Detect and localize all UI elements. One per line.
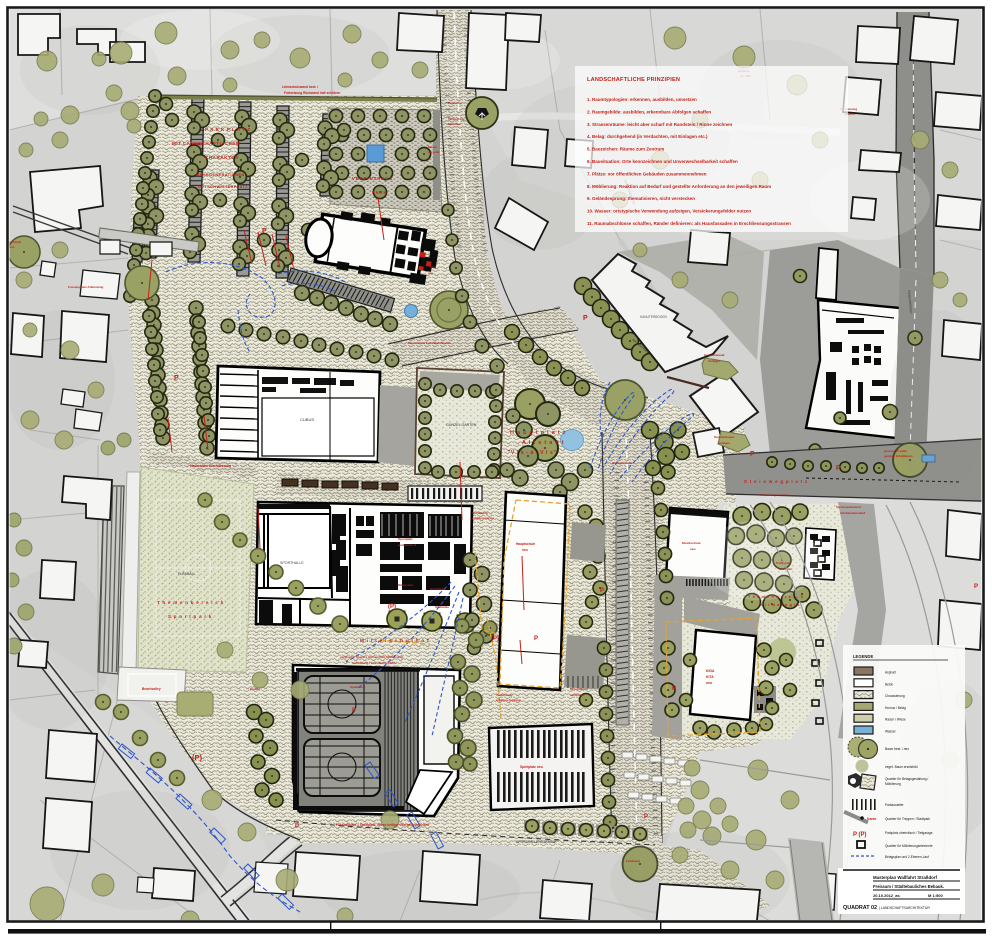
svg-text:neu: neu	[690, 547, 696, 551]
svg-text:Parkausteiler: Parkausteiler	[885, 803, 905, 807]
svg-text:Wiese neu: Wiese neu	[398, 583, 413, 587]
svg-text:P: P	[750, 451, 755, 458]
svg-text:Fortsetzung Rückwand halt schü: Fortsetzung Rückwand halt schützen	[284, 91, 340, 95]
svg-text:11. Raumabschlüsse schaffen, R: 11. Raumabschlüsse schaffen, Ränder defi…	[587, 221, 791, 226]
svg-text:10. Wasser: ortstypische Verwe: 10. Wasser: ortstypische Verwendung aufz…	[587, 209, 751, 214]
svg-text:Sitzbänke: Sitzbänke	[435, 605, 449, 609]
svg-text:mit Baumbestand: mit Baumbestand	[840, 511, 865, 515]
svg-text:Massnahme Erschliessung: Massnahme Erschliessung	[190, 464, 231, 468]
svg-text:Humus / Belag: Humus / Belag	[885, 706, 906, 710]
svg-text:P: P	[295, 824, 299, 830]
svg-text:Bushaltestelle: Bushaltestelle	[612, 461, 633, 465]
svg-text:SPORTHALLE: SPORTHALLE	[280, 561, 304, 565]
svg-text:neu: neu	[706, 681, 712, 685]
svg-text:8. Möblierung: Reaktion auf Be: 8. Möblierung: Reaktion auf Bedarf und g…	[587, 184, 771, 189]
svg-text:Rasen / Wiese: Rasen / Wiese	[885, 718, 906, 722]
svg-text:Spielwiese: Spielwiese	[350, 685, 366, 689]
svg-text:5. Bauzeichen: Räume zum Zentr: 5. Bauzeichen: Räume zum Zentrum	[587, 147, 664, 152]
svg-text:Spielplatz neu: Spielplatz neu	[520, 765, 543, 769]
svg-text:P: P	[174, 375, 179, 382]
svg-text:Möblierung: Möblierung	[885, 782, 901, 786]
svg-text:Kanuterbogen: Kanuterbogen	[714, 435, 735, 439]
svg-text:P: P	[600, 588, 604, 594]
svg-text:Lärmschutzwand best. /: Lärmschutzwand best. /	[282, 85, 318, 89]
svg-text:S p o r t p a r k: S p o r t p a r k	[168, 614, 212, 619]
svg-text:Masterplan Wallfahrt Straßdorf: Masterplan Wallfahrt Straßdorf	[873, 875, 938, 880]
svg-text:S t e i n w e g p l a t z: S t e i n w e g p l a t z	[744, 479, 808, 484]
svg-text:A l t s t a d t: A l t s t a d t	[522, 440, 564, 446]
svg-text:neu: neu	[428, 271, 433, 275]
svg-text:erhalten Aufgang: erhalten Aufgang	[496, 698, 521, 702]
svg-text:FUSSBALL: FUSSBALL	[178, 572, 195, 576]
svg-text:veget. Baum ersetzbibl.: veget. Baum ersetzbibl.	[885, 765, 918, 769]
svg-text:KIGA: KIGA	[706, 669, 715, 673]
svg-text:erhalten Garten: erhalten Garten	[472, 516, 494, 520]
svg-text:Quartier für Möblierungselemen: Quartier für Möblierungselemente	[885, 844, 933, 848]
svg-text:VEREINSHAUS: VEREINSHAUS	[352, 176, 393, 181]
svg-text:Belagsplan und 2-Ebenen-Lauf: Belagsplan und 2-Ebenen-Lauf	[885, 855, 929, 859]
svg-text:Gemeindesaal: Gemeindesaal	[704, 353, 725, 357]
svg-text:M 1:500: M 1:500	[928, 893, 943, 898]
svg-text:KANUTERBOGEN: KANUTERBOGEN	[640, 315, 667, 319]
svg-text:Bäume: Bäume	[250, 687, 260, 691]
svg-text:grosser 2? platz: grosser 2? platz	[884, 449, 908, 453]
svg-text:Aufstellung / Fossilkörbe) Sit: Aufstellung / Fossilkörbe) Sitze	[352, 661, 397, 665]
svg-text:P: P	[644, 814, 648, 820]
svg-text:H a u p t p l a t z: H a u p t p l a t z	[510, 430, 566, 436]
svg-text:Grünfläche: Grünfläche	[430, 587, 446, 591]
svg-text:auskleiden d.: auskleiden d.	[398, 543, 417, 547]
svg-text:MIT LANDSCHAFTLICHEM: MIT LANDSCHAFTLICHEM	[172, 141, 240, 146]
svg-text:Quartier für Treppen / Stadtpa: Quartier für Treppen / Stadtpark	[885, 817, 930, 821]
svg-text:Beton: Beton	[885, 682, 894, 686]
svg-text:T h e m e n b e r e i c h: T h e m e n b e r e i c h	[748, 595, 804, 599]
svg-text:6. Bausituation: Orte kennzeic: 6. Bausituation: Orte kennzeichnen und U…	[587, 159, 738, 164]
svg-text:(P): (P)	[388, 604, 396, 610]
svg-text:"V i s - à - V i s": "V i s - à - V i s"	[508, 450, 556, 456]
svg-text:gemäss Erhaltbaum: gemäss Erhaltbaum	[884, 454, 913, 458]
svg-text:LEGENDE: LEGENDE	[853, 654, 873, 659]
svg-text:T h e m e n b e r e i c h: T h e m e n b e r e i c h	[157, 600, 224, 605]
svg-text:P (P): P (P)	[853, 832, 867, 838]
svg-text:Fussballplatz = Sportplatz, Wi: Fussballplatz = Sportplatz, Wiese heilig…	[336, 822, 429, 827]
svg-text:vergleiche Querere (Gesamtheit: vergleiche Querere (Gesamtheit Möblierun…	[340, 655, 403, 659]
svg-text:LANDSCHAFTLICHE PRINZIPIEN: LANDSCHAFTLICHE PRINZIPIEN	[587, 77, 680, 83]
svg-text:Bahnhalt: Bahnhalt	[8, 240, 21, 244]
svg-text:Fusswegnetz Anbindung: Fusswegnetz Anbindung	[68, 285, 104, 289]
svg-text:M i t t e l s c h u l h o f: M i t t e l s c h u l h o f	[360, 638, 429, 643]
svg-text:QUADRAT 02: QUADRAT 02	[843, 905, 877, 911]
svg-text:Hauptschule: Hauptschule	[516, 542, 535, 546]
svg-text:(P): (P)	[491, 636, 499, 642]
svg-text:GETSCHWISTERPLATZ: GETSCHWISTERPLATZ	[198, 184, 248, 189]
svg-text:P: P	[262, 228, 267, 235]
svg-text:K l i m a l o g i s: K l i m a l o g i s	[760, 603, 800, 607]
svg-text:Gestaltung: Gestaltung	[472, 511, 488, 515]
svg-text:Musikschule: Musikschule	[682, 541, 701, 545]
svg-text:Festbaum: Festbaum	[626, 859, 641, 863]
svg-text:CHARAKTER: CHARAKTER	[205, 155, 239, 160]
svg-text:neu: neu	[522, 548, 528, 552]
svg-text:1. Raumtypologien: erkennen, a: 1. Raumtypologien: erkennen, ausbilden, …	[587, 97, 697, 102]
svg-text:9. Geländesprung: thematisiere: 9. Geländesprung: thematisieren, nicht v…	[587, 196, 695, 201]
svg-text:Terrassenbereich: Terrassenbereich	[836, 505, 861, 509]
svg-text:best.: best.	[8, 245, 15, 249]
svg-text:versetzt: versetzt	[428, 150, 439, 154]
svg-text:Mauer: Mauer	[428, 145, 438, 149]
svg-text:Wasser: Wasser	[885, 730, 897, 734]
svg-text:MEHRGENERATIONEN: MEHRGENERATIONEN	[196, 172, 245, 177]
svg-text:P: P	[534, 636, 538, 642]
svg-text:4. Belag: durchgehend (in Verd: 4. Belag: durchgehend (in Verdachten, mi…	[587, 134, 708, 139]
svg-text:Schulhäuser: Schulhäuser	[570, 687, 589, 691]
svg-text:SPORTHALLENSTRASSE: SPORTHALLENSTRASSE	[516, 840, 557, 844]
svg-text:Verbindung: Verbindung	[448, 117, 465, 121]
svg-text:Anlieger: Anlieger	[718, 441, 731, 445]
svg-text:Quartier für Belagsgestaltung: Quartier für Belagsgestaltung /	[885, 777, 928, 781]
svg-text:PARK: PARK	[372, 190, 388, 195]
svg-text:KITA: KITA	[706, 675, 714, 679]
svg-text:3. Strassenräume: leicht aber: 3. Strassenräume: leicht aber scharf mit…	[587, 122, 733, 127]
svg-text:Rotbuche: Rotbuche	[448, 101, 462, 105]
svg-text:| LANDSCHAFTSARCHITEKTUR: | LANDSCHAFTSARCHITEKTUR	[879, 906, 930, 910]
svg-text:P: P	[352, 708, 356, 714]
svg-text:GUNZEL GARTEN: GUNZEL GARTEN	[446, 423, 477, 427]
svg-text:Parkplatz oberirdisch / Tiefga: Parkplatz oberirdisch / Tiefgarage	[885, 831, 933, 835]
svg-text:Parkierungen einbez.: Parkierungen einbez.	[760, 493, 790, 497]
svg-text:Asphalt: Asphalt	[885, 671, 896, 675]
svg-text:CUBUS: CUBUS	[300, 417, 314, 422]
svg-text:P: P	[583, 315, 588, 322]
svg-text:Beachvolley: Beachvolley	[142, 687, 161, 691]
svg-text:P: P	[836, 465, 841, 472]
svg-text:7. Plätze: vor öffentlichen Ge: 7. Plätze: vor öffentlichen Gebäuden zus…	[587, 171, 707, 176]
svg-text:P: P	[672, 686, 676, 692]
svg-text:Kante: Kante	[867, 817, 877, 821]
svg-text:Freiraum / Städtebauliches Beb: Freiraum / Städtebauliches Bebauk.	[873, 884, 944, 889]
svg-text:P: P	[974, 584, 978, 590]
svg-text:Massnahme Fuss/Rad Shuttle: Massnahme Fuss/Rad Shuttle	[408, 341, 451, 345]
svg-text:Baum best. / neu: Baum best. / neu	[885, 747, 909, 751]
svg-text:2. Raumgebilde: ausbilden, erk: 2. Raumgebilde: ausbilden, erkennbare Ab…	[587, 109, 711, 114]
svg-text:verbinden: verbinden	[570, 693, 585, 697]
svg-text:P A R K P L A T Z: P A R K P L A T Z	[205, 127, 251, 132]
svg-text:schaffen: schaffen	[448, 122, 461, 126]
svg-text:Anlieger: Anlieger	[708, 359, 721, 363]
svg-text:(P): (P)	[192, 753, 203, 762]
svg-text:Verbindung: Verbindung	[496, 693, 513, 697]
svg-text:Chaussierung: Chaussierung	[885, 694, 905, 698]
svg-text:Sportplatz: Sportplatz	[398, 537, 413, 541]
svg-text:Saal: Saal	[430, 265, 436, 269]
svg-text:20.10.2012_as: 20.10.2012_as	[873, 893, 900, 898]
